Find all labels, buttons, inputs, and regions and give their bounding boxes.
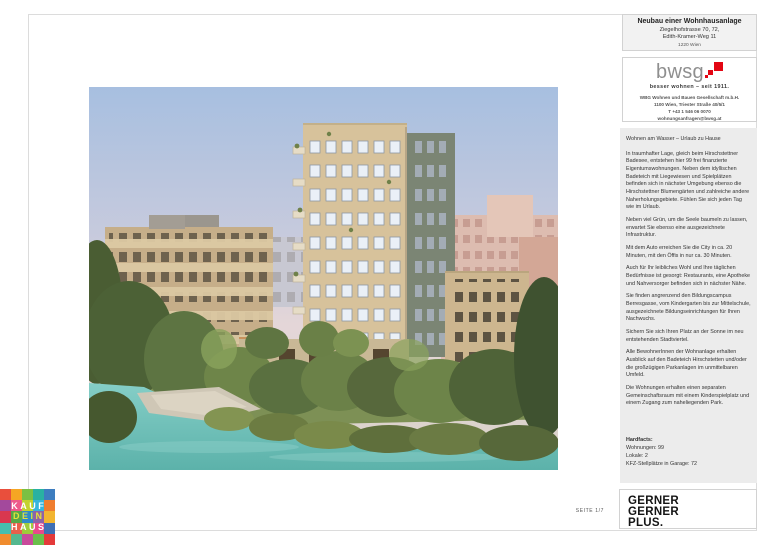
bwsg-squares-icon — [707, 62, 723, 80]
description-paragraph: Auch für Ihr leibliches Wohl und Ihre tä… — [626, 265, 751, 288]
description-headline: Wohnen am Wasser – Urlaub zu Hause — [626, 136, 751, 144]
description-paragraph: Sie finden angrenzend den Bildungscampus… — [626, 293, 751, 324]
kaufdeinhaus-line: DEIN — [10, 512, 44, 521]
architect-logo-line: PLUS. — [628, 518, 756, 529]
bwsg-tagline: besser wohnen – seit 1911. — [623, 84, 756, 90]
description-panel: Wohnen am Wasser – Urlaub zu Hause In tr… — [620, 128, 757, 483]
bwsg-logo: bwsg — [656, 62, 723, 82]
hardfacts-heading: Hardfacts: — [626, 436, 697, 444]
description-paragraph: Alle BewohnerInnen der Wohnanlage erhalt… — [626, 349, 751, 380]
bwsg-phone: T +43 1 546 06 0070 — [623, 108, 756, 115]
description-paragraph: Sichern Sie sich Ihren Platz an der Sonn… — [626, 329, 751, 344]
hardfacts-item-wohnungen: Wohnungen: 99 — [626, 444, 697, 452]
architectural-rendering — [89, 87, 558, 470]
description-paragraph: Mit dem Auto erreichen Sie die City in c… — [626, 245, 751, 260]
expose-page: Neubau einer Wohnhausanlage Ziegelhofstr… — [0, 0, 770, 545]
hardfacts-item-stellplaetze: KFZ-Stellplätze in Garage: 72 — [626, 460, 697, 468]
description-paragraph: Neben viel Grün, um die Seele baumeln zu… — [626, 217, 751, 240]
bwsg-company: WBG Wohnen und Bauen Gesellschaft m.b.H. — [623, 94, 756, 101]
rendering-illustration — [89, 87, 558, 470]
kaufdeinhaus-line: HAUS — [8, 523, 46, 532]
bwsg-wordmark: bwsg — [656, 62, 704, 82]
bwsg-email-link[interactable]: wohnungsanfragen@bwsg.at — [623, 115, 756, 122]
project-header-box: Neubau einer Wohnhausanlage Ziegelhofstr… — [622, 14, 757, 51]
hardfacts-item-lokale: Lokale: 2 — [626, 452, 697, 460]
project-address-line2: Edith-Kramer-Weg 11 — [623, 34, 756, 42]
project-city: 1220 Wien — [623, 43, 756, 48]
description-paragraph: Die Wohnungen erhalten einen separaten G… — [626, 385, 751, 408]
kaufdeinhaus-line: KAUF — [9, 502, 47, 511]
bwsg-address: 1100 Wien, Triester Straße 40/5/1 — [623, 101, 756, 108]
hardfacts-block: Hardfacts: Wohnungen: 99 Lokale: 2 KFZ-S… — [626, 436, 697, 468]
page-number-label: SEITE 1/7 — [552, 508, 604, 514]
kaufdeinhaus-logo: KAUF DEIN HAUS — [0, 489, 55, 545]
project-address-line1: Ziegelhofstrasse 70, 72, — [623, 27, 756, 35]
project-title: Neubau einer Wohnhausanlage — [623, 18, 756, 27]
kaufdeinhaus-text: KAUF DEIN HAUS — [0, 489, 55, 545]
bwsg-logo-box: bwsg besser wohnen – seit 1911. WBG Wohn… — [622, 57, 757, 122]
architect-logo-box: GERNER GERNER PLUS. — [619, 489, 757, 529]
bwsg-contact-info: WBG Wohnen und Bauen Gesellschaft m.b.H.… — [623, 94, 756, 122]
description-paragraph: In traumhafter Lage, gleich beim Hirschs… — [626, 151, 751, 212]
